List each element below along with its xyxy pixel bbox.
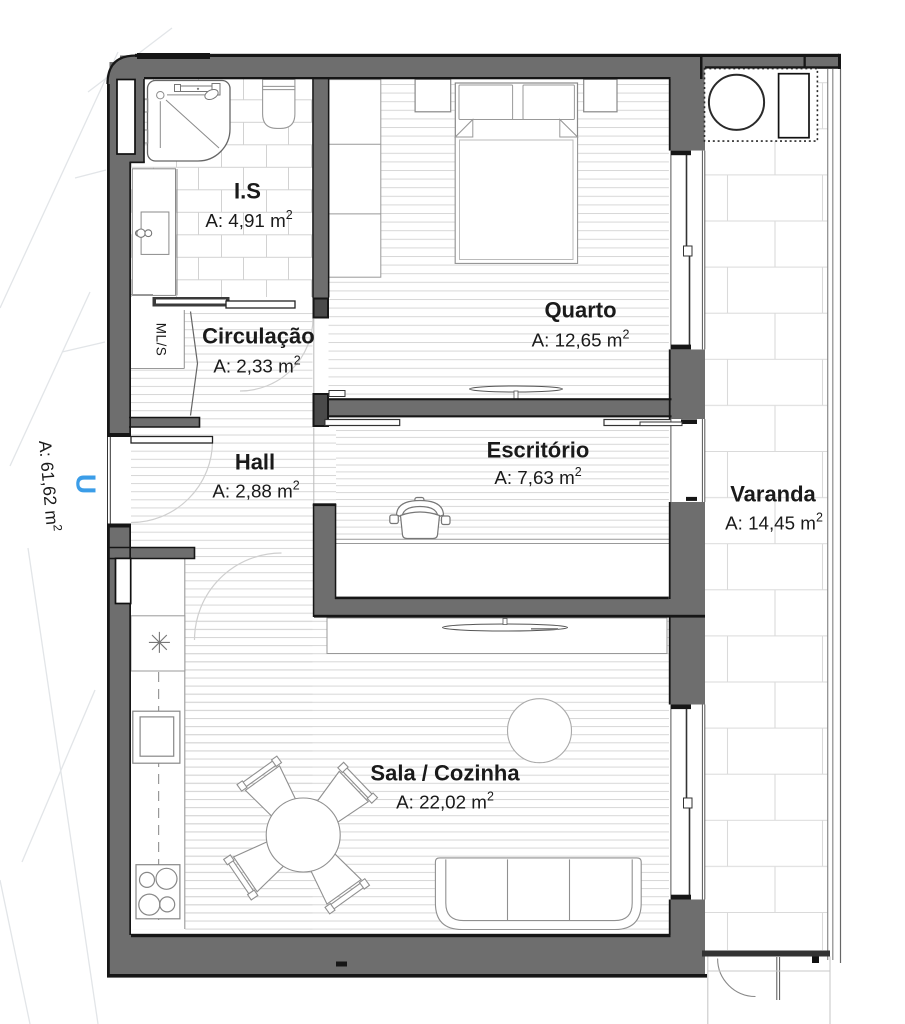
svg-text:A: 12,65 m2: A: 12,65 m2 <box>532 328 630 351</box>
svg-text:A: 7,63 m2: A: 7,63 m2 <box>494 465 581 488</box>
svg-text:Escritório: Escritório <box>487 438 590 463</box>
svg-text:Quarto: Quarto <box>544 298 616 323</box>
svg-text:ML/S: ML/S <box>154 323 169 357</box>
svg-text:A: 14,45 m2: A: 14,45 m2 <box>725 511 823 534</box>
svg-text:Varanda: Varanda <box>730 482 816 507</box>
svg-text:A: 2,33 m2: A: 2,33 m2 <box>213 354 300 377</box>
svg-text:A: 4,91 m2: A: 4,91 m2 <box>205 208 292 231</box>
svg-text:Circulação: Circulação <box>202 324 315 349</box>
svg-text:Hall: Hall <box>235 450 275 475</box>
svg-text:A: 22,02 m2: A: 22,02 m2 <box>396 790 494 813</box>
svg-text:I.S: I.S <box>234 179 261 204</box>
svg-text:Sala / Cozinha: Sala / Cozinha <box>370 761 520 786</box>
svg-text:A: 2,88 m2: A: 2,88 m2 <box>212 479 299 502</box>
svg-text:U: U <box>71 474 102 494</box>
